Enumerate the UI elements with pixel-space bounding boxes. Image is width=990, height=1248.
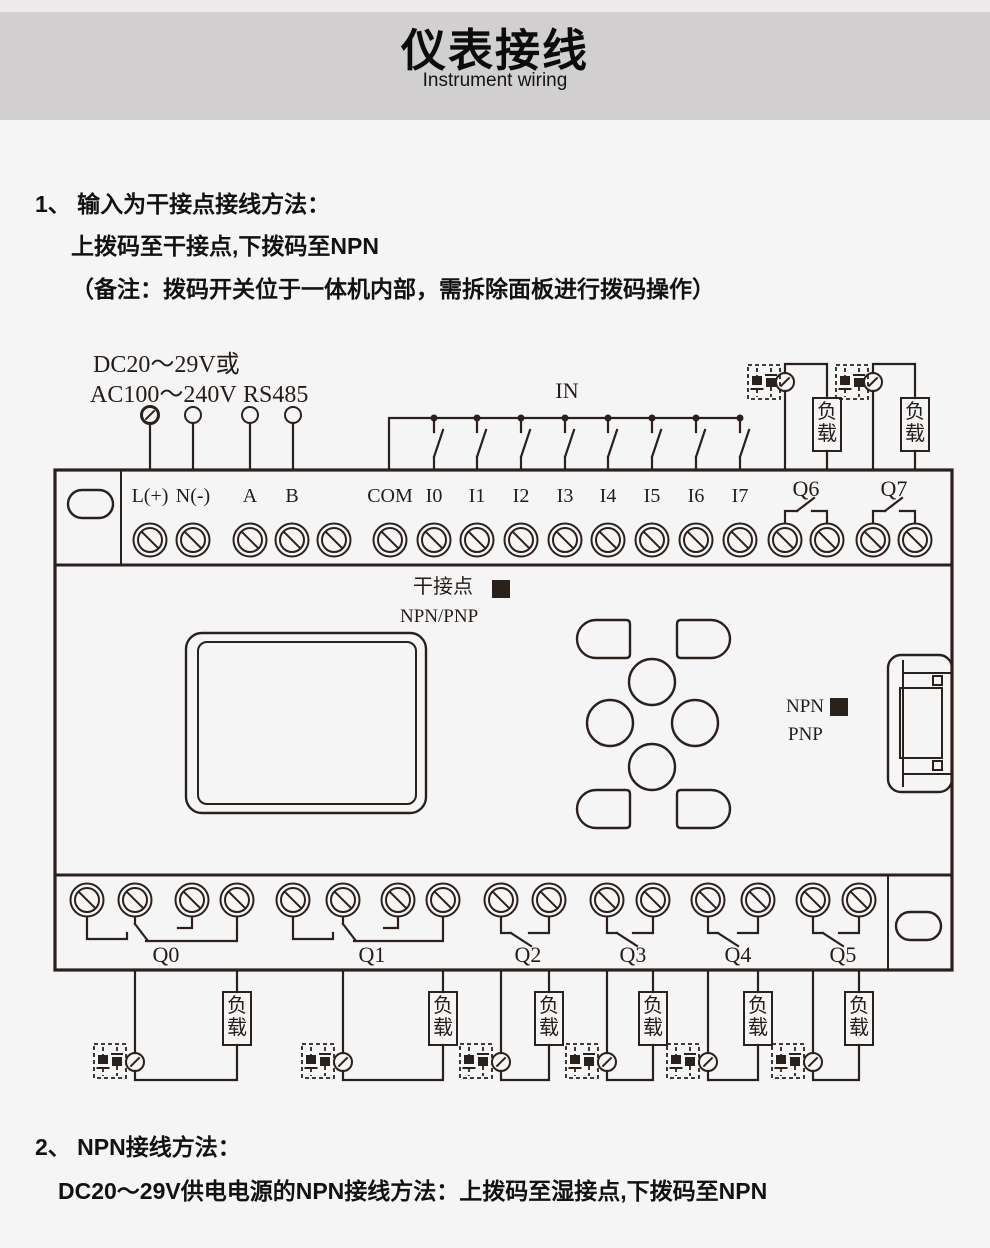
terminal-screw	[374, 524, 407, 557]
snubber-box-icon	[460, 1044, 492, 1078]
ac-source-icon	[804, 1053, 822, 1071]
load-box: 负载	[744, 992, 772, 1045]
npn-label: NPN	[786, 696, 824, 717]
terminal-screw	[692, 884, 725, 917]
load-label: 负载	[227, 994, 247, 1039]
terminal-label: I5	[644, 485, 661, 507]
terminal-screw	[71, 884, 104, 917]
terminal-label: B	[285, 485, 298, 507]
terminal-screw	[724, 524, 757, 557]
load-box: 负载	[429, 992, 457, 1045]
terminal-screw	[811, 524, 844, 557]
terminal-screw	[637, 884, 670, 917]
load-box: 负载	[813, 398, 841, 451]
terminal-screw	[234, 524, 267, 557]
terminal-label: I4	[600, 485, 617, 507]
terminal-screw	[843, 884, 876, 917]
snubber-box-icon	[748, 365, 780, 399]
page-subtitle: Instrument wiring	[0, 70, 990, 92]
load-label: 负载	[539, 994, 559, 1039]
q0-external-circuit: 负载	[94, 970, 251, 1080]
relay-label-q3: Q3	[620, 942, 647, 967]
load-box: 负载	[535, 992, 563, 1045]
terminal-label: I0	[426, 485, 443, 507]
power-label-2: AC100～240V	[90, 382, 237, 408]
terminal-label: I3	[557, 485, 574, 507]
header: 仪表接线 Instrument wiring	[0, 12, 990, 120]
input-switches	[431, 415, 750, 471]
section1-note: （备注：拨码开关位于一体机内部，需拆除面板进行拨码操作）	[71, 278, 715, 301]
relay-label-q4: Q4	[725, 942, 752, 967]
input-bus: IN	[389, 378, 749, 470]
terminal-screw	[797, 884, 830, 917]
device-body	[55, 470, 952, 970]
terminal-screw	[277, 884, 310, 917]
snubber-box-icon	[667, 1044, 699, 1078]
load-box: 负载	[845, 992, 873, 1045]
snubber-box-icon	[836, 365, 868, 399]
terminal-label: COM	[367, 485, 413, 507]
terminal-screw	[485, 884, 518, 917]
terminal-label: I7	[732, 485, 749, 507]
terminal-screw	[119, 884, 152, 917]
terminal-screw	[276, 524, 309, 557]
relay-label-q7: Q7	[881, 476, 908, 501]
terminal-screw	[505, 524, 538, 557]
section1-heading: 1、 输入为干接点接线方法：	[35, 193, 330, 216]
dry-contact-label: 干接点	[413, 575, 473, 598]
snubber-box-icon	[302, 1044, 334, 1078]
terminal-screw	[382, 884, 415, 917]
terminal-screw	[418, 524, 451, 557]
ac-source-icon	[699, 1053, 717, 1071]
ac-source-icon	[776, 373, 794, 391]
ac-source-icon	[864, 373, 882, 391]
relay-label-q2: Q2	[515, 942, 542, 967]
terminal-screw	[427, 884, 460, 917]
load-label: 负载	[905, 400, 925, 445]
terminal-label: L(+)	[132, 485, 169, 507]
terminal-label: I1	[469, 485, 486, 507]
terminal-screw	[327, 884, 360, 917]
load-box: 负载	[901, 398, 929, 451]
load-label: 负载	[643, 994, 663, 1039]
terminal-screw	[177, 524, 210, 557]
load-label: 负载	[817, 400, 837, 445]
terminal-label: N(-)	[176, 485, 210, 507]
relay-label-q6: Q6	[793, 476, 820, 501]
section1-line2: 上拨码至干接点,下拨码至NPN	[71, 235, 379, 258]
section2-heading: 2、 NPN接线方法：	[35, 1136, 241, 1159]
terminal-screw	[591, 884, 624, 917]
pnp-label: PNP	[788, 724, 823, 745]
terminal-label: A	[243, 485, 258, 507]
load-label: 负载	[849, 994, 869, 1039]
terminal-screw	[461, 524, 494, 557]
terminal-screw	[680, 524, 713, 557]
q5-external-circuit: 负载	[772, 970, 873, 1080]
terminal-screw	[221, 884, 254, 917]
terminal-screw	[899, 524, 932, 557]
page-title: 仪表接线	[0, 26, 990, 76]
terminal-screw	[636, 524, 669, 557]
power-labels: DC20～29V或 AC100～240V RS485	[90, 351, 308, 408]
load-label: 负载	[433, 994, 453, 1039]
relay-label-q5: Q5	[830, 942, 857, 967]
load-box: 负载	[223, 992, 251, 1045]
ac-source-icon	[334, 1053, 352, 1071]
relay-label-q1: Q1	[359, 942, 386, 967]
q3-external-circuit: 负载	[566, 970, 667, 1080]
terminal-screw	[318, 524, 351, 557]
ac-source-icon	[126, 1053, 144, 1071]
q6-external-circuit: 负载	[748, 364, 841, 470]
ac-source-icon	[492, 1053, 510, 1071]
power-wires	[141, 406, 301, 470]
snubber-box-icon	[772, 1044, 804, 1078]
q4-external-circuit: 负载	[667, 970, 772, 1080]
npn-pnp-label: NPN/PNP	[400, 606, 478, 627]
in-label: IN	[555, 378, 578, 403]
terminal-label: I6	[688, 485, 705, 507]
terminal-screw	[549, 524, 582, 557]
page: { "header": { "title": "仪表接线", "subtitle…	[0, 0, 990, 1248]
load-label: 负载	[748, 994, 768, 1039]
section2-line2: DC20～29V供电电源的NPN接线方法：上拨码至湿接点,下拨码至NPN	[58, 1180, 767, 1203]
terminal-screw	[134, 524, 167, 557]
terminal-screw	[533, 884, 566, 917]
dip-switch-icon	[492, 580, 510, 598]
q2-external-circuit: 负载	[460, 970, 563, 1080]
q1-external-circuit: 负载	[302, 970, 457, 1080]
terminal-screw	[742, 884, 775, 917]
terminal-screw	[592, 524, 625, 557]
power-label-1: DC20～29V或	[93, 351, 240, 378]
snubber-box-icon	[566, 1044, 598, 1078]
dip-switch-icon	[830, 698, 848, 716]
q7-external-circuit: 负载	[836, 364, 929, 470]
wiring-diagram: DC20～29V或 AC100～240V RS485 IN	[0, 340, 990, 1110]
load-box: 负载	[639, 992, 667, 1045]
ac-source-icon	[598, 1053, 616, 1071]
terminal-screw	[769, 524, 802, 557]
header-top-strip	[0, 0, 990, 12]
terminal-screw	[857, 524, 890, 557]
snubber-box-icon	[94, 1044, 126, 1078]
relay-label-q0: Q0	[153, 942, 180, 967]
rs485-label: RS485	[243, 382, 308, 408]
terminal-label: I2	[513, 485, 530, 507]
terminal-screw	[176, 884, 209, 917]
